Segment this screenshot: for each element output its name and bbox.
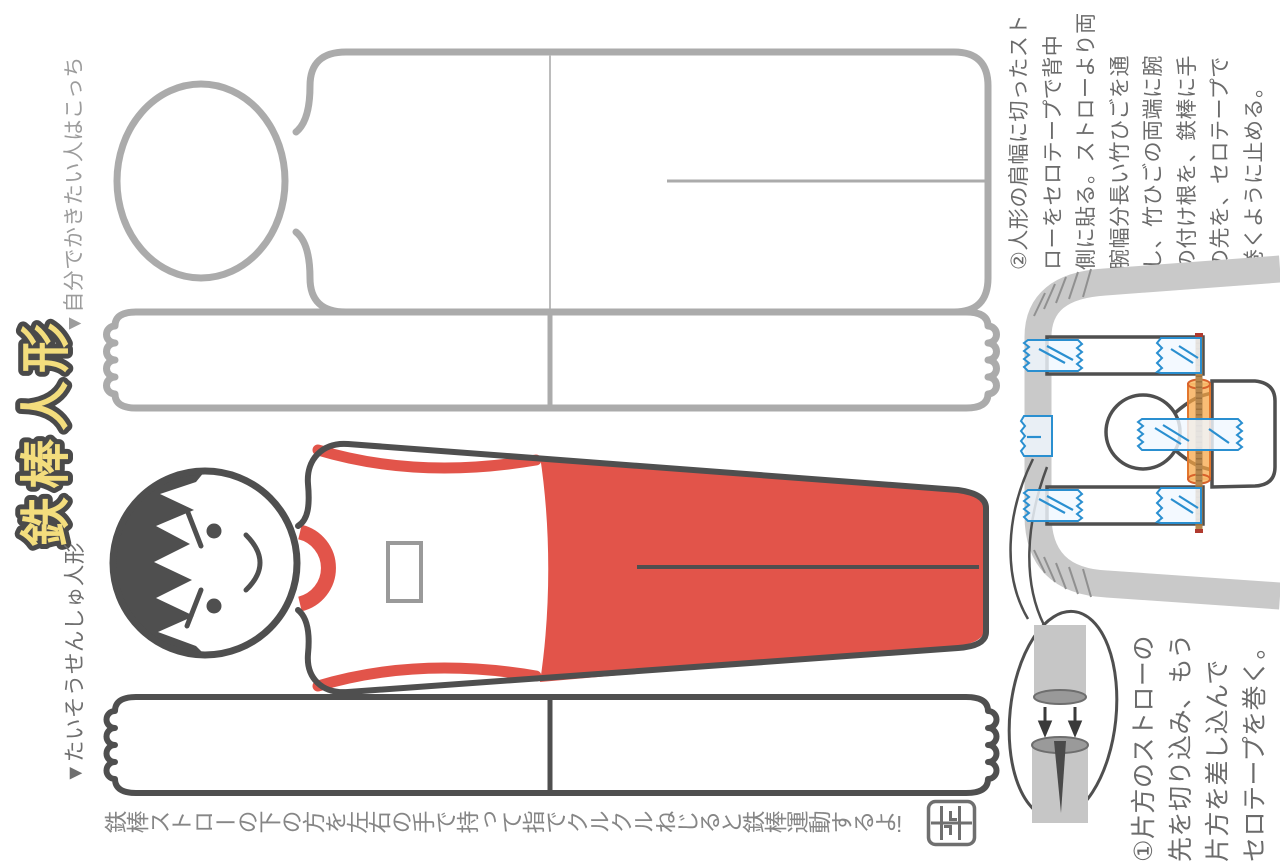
instruction-step2: ②人形の肩幅に切ったスト ローをセロテープで背中 側に貼る。ストローより両 腕幅…: [1003, 8, 1271, 270]
gymnast-label: ▼たいそうせんしゅ人形: [58, 538, 92, 788]
artist-seal-icon: [927, 800, 977, 847]
straw-opening: [1034, 690, 1086, 704]
template-head: [117, 84, 285, 278]
usage-caption: 鉄棒ストローの下の方を左右の手で持って指でクルクルねじると鉄棒運動するよ!: [104, 807, 934, 847]
page-title-art: 鉄棒人形: [0, 306, 90, 556]
gymnast-eye-2: [207, 599, 222, 614]
gymnast-figure: [100, 420, 1000, 800]
craft-sheet: 鉄棒人形 ▼自分でかきたい人はこっち ▼たいそうせんしゅ人形 ②人形の肩幅に切っ…: [0, 0, 1280, 866]
template-label: ▼自分でかきたい人はこっち: [58, 50, 92, 340]
page-title-text: 鉄棒人形: [18, 315, 74, 547]
page-title: 鉄棒人形: [0, 306, 90, 556]
assembly-diagram: [995, 253, 1280, 853]
template-figure: [100, 40, 1000, 420]
gymnast-eye-1: [207, 524, 222, 539]
tape-back-straw: [1138, 419, 1242, 450]
gymnast-chest-emblem: [388, 543, 421, 601]
straw-piece-plain: [1034, 625, 1086, 697]
